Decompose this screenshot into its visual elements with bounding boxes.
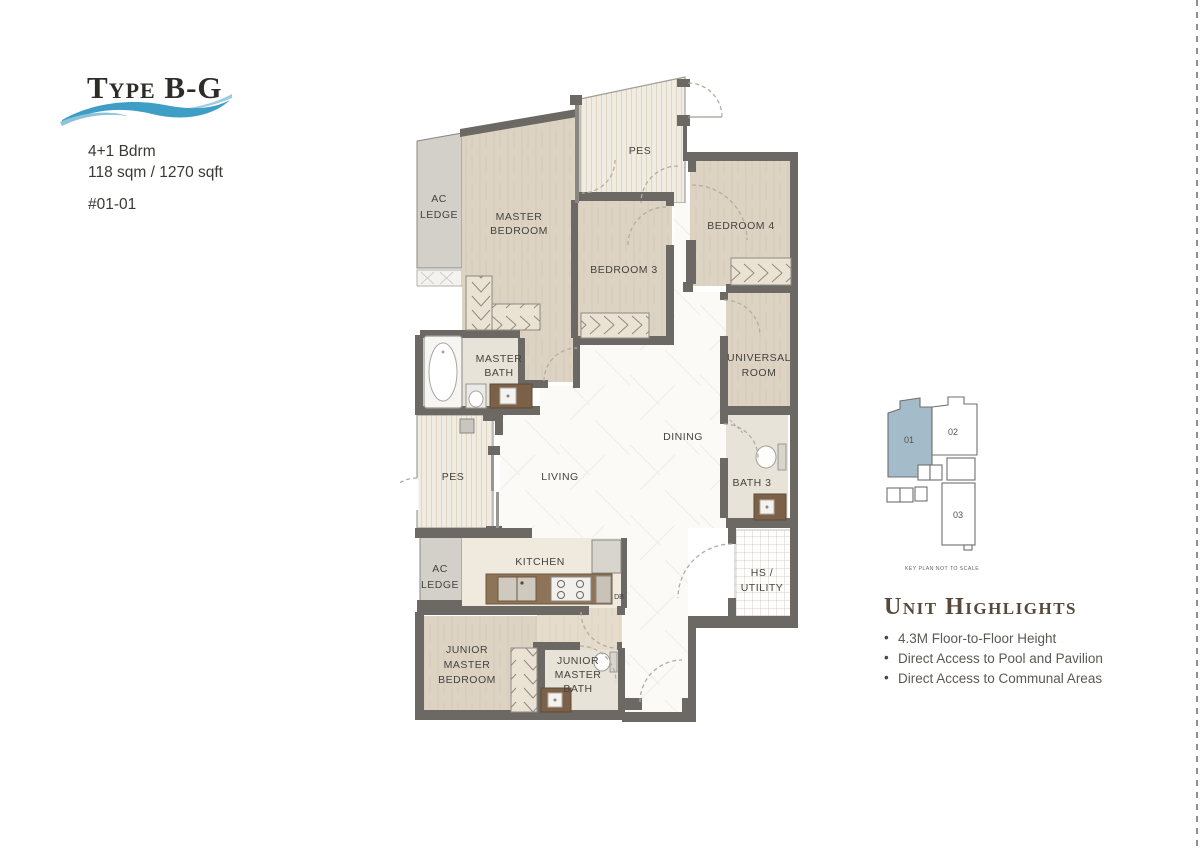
label-hs-1: HS / xyxy=(751,567,773,579)
label-bedroom3: BEDROOM 3 xyxy=(590,264,658,276)
label-pes-top: PES xyxy=(629,145,652,157)
label-universal-1: UNIVERSAL xyxy=(727,352,791,364)
label-jr-bedroom-2: MASTER xyxy=(444,659,491,671)
label-jr-bath-1: JUNIOR xyxy=(557,655,599,667)
unit-highlights: Unit Highlights 4.3M Floor-to-Floor Heig… xyxy=(884,594,1194,691)
keyplan-label-01: 01 xyxy=(904,435,914,445)
label-jr-bath-3: BATH xyxy=(563,683,592,695)
unit-highlights-list: 4.3M Floor-to-Floor Height Direct Access… xyxy=(884,631,1194,686)
label-master-bedroom-1: MASTER xyxy=(496,211,543,223)
label-bedroom4: BEDROOM 4 xyxy=(707,220,775,232)
keyplan-drawing: 01 02 03 KEY PLAN NOT TO SCALE xyxy=(880,393,990,578)
label-universal-2: ROOM xyxy=(742,367,777,379)
master-vanity-icon xyxy=(490,384,532,408)
wave-logo-icon xyxy=(60,93,232,129)
page-cut-line xyxy=(1196,0,1198,848)
highlight-item: 4.3M Floor-to-Floor Height xyxy=(884,631,1194,646)
label-ac-ledge-top-1: AC xyxy=(431,193,447,205)
label-ac-ledge-lower-2: LEDGE xyxy=(421,579,459,591)
label-dining: DINING xyxy=(663,431,703,443)
keyplan-label-03: 03 xyxy=(953,510,963,520)
highlight-item: Direct Access to Communal Areas xyxy=(884,671,1194,686)
label-living: LIVING xyxy=(541,471,578,483)
highlight-item: Direct Access to Pool and Pavilion xyxy=(884,651,1194,666)
label-hs-2: UTILITY xyxy=(741,582,784,594)
label-ac-ledge-lower-1: AC xyxy=(432,563,448,575)
unit-info: 4+1 Bdrm 118 sqm / 1270 sqft xyxy=(88,141,223,184)
label-jr-bedroom-3: BEDROOM xyxy=(438,674,496,686)
unit-area: 118 sqm / 1270 sqft xyxy=(88,162,223,183)
unit-number: #01-01 xyxy=(88,196,136,214)
label-master-bedroom-2: BEDROOM xyxy=(490,225,548,237)
bathtub-icon xyxy=(424,336,462,408)
label-db: DB xyxy=(614,594,624,601)
floorplan-drawing: PES MASTER BEDROOM BEDROOM 3 BEDROOM 4 A… xyxy=(400,55,875,745)
unit-bedrooms: 4+1 Bdrm xyxy=(88,141,223,162)
master-toilet-icon xyxy=(466,384,486,408)
label-bath3: BATH 3 xyxy=(733,477,772,489)
label-jr-bath-2: MASTER xyxy=(555,669,602,681)
label-master-bath-2: BATH xyxy=(484,367,513,379)
keyplan-label-02: 02 xyxy=(948,427,958,437)
label-jr-bedroom-1: JUNIOR xyxy=(446,644,488,656)
keyplan-unit-02 xyxy=(932,397,977,455)
keyplan-caption: KEY PLAN NOT TO SCALE xyxy=(905,566,979,572)
label-kitchen: KITCHEN xyxy=(515,556,565,568)
label-ac-ledge-top-2: LEDGE xyxy=(420,209,458,221)
label-pes-lower: PES xyxy=(442,471,465,483)
heater-box xyxy=(460,419,474,433)
floorplan-page: Type B-G 4+1 Bdrm 118 sqm / 1270 sqft #0… xyxy=(0,0,1200,848)
unit-highlights-title: Unit Highlights xyxy=(884,594,1194,621)
label-master-bath-1: MASTER xyxy=(476,353,523,365)
